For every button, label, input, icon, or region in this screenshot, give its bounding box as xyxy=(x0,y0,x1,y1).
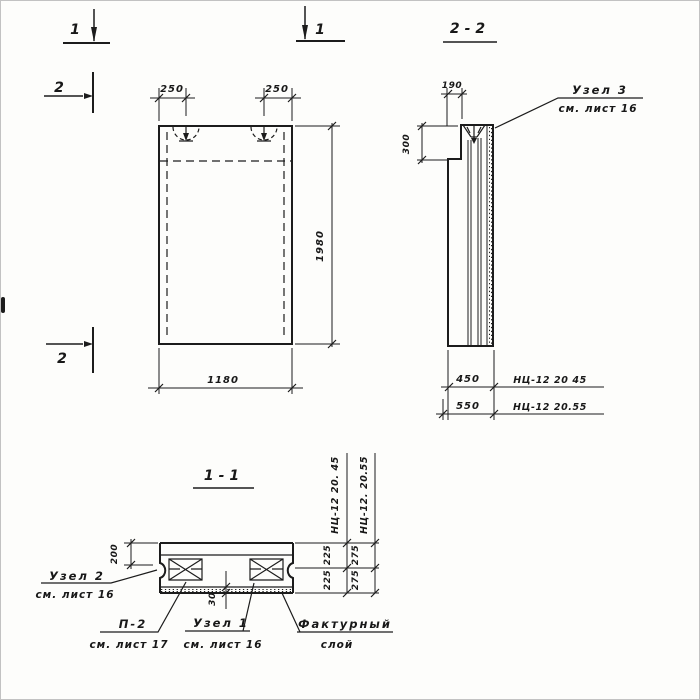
dim-ticks xyxy=(127,539,230,597)
dim-label-190: 190 xyxy=(442,81,463,91)
dim-label-30: 30 xyxy=(208,592,218,606)
dim-label-450: 450 xyxy=(455,374,480,385)
callout-p2-line2: см. лист 17 xyxy=(89,639,168,651)
section-1-1-view: 1-1 200 30 НЦ-12 20. 45 НЦ-12. 20.55 xyxy=(35,453,393,651)
callout-node2-line2: см. лист 16 xyxy=(35,589,114,601)
dim-label-250-right: 250 xyxy=(265,84,289,95)
dim-label-275-bottom: 275 xyxy=(351,570,361,591)
dim-label-1980: 1980 xyxy=(315,230,326,262)
layer-lines xyxy=(468,126,487,345)
cut-marker-1-right: 1 xyxy=(296,6,345,41)
section-1-1-title-label: 1-1 xyxy=(204,468,244,484)
down-arrow-icon xyxy=(471,138,477,144)
facing-layer-texture xyxy=(490,127,492,345)
right-arrow-icon xyxy=(84,341,93,347)
callout-facing-line2: слой xyxy=(321,639,354,651)
section-2-2-dimensions: 190 300 450 550 НЦ-12 20 45 НЦ-12 20.55 xyxy=(402,81,604,420)
callout-node1-line1: Узел 1 xyxy=(193,616,249,630)
lifting-loop-left xyxy=(173,126,199,141)
section-1-1-dimensions-right: НЦ-12 20. 45 НЦ-12. 20.55 225 225 275 27… xyxy=(295,453,379,597)
left-edge-with-notch xyxy=(160,543,165,593)
dim-label-250-left: 250 xyxy=(160,84,184,95)
type-label-55-vertical: НЦ-12. 20.55 xyxy=(359,456,370,534)
dim-label-550: 550 xyxy=(456,401,480,412)
lifting-loop-right xyxy=(251,126,277,141)
right-edge-with-notch xyxy=(288,543,293,593)
callout-node3-line1: Узел 3 xyxy=(572,83,628,97)
right-arrow-icon xyxy=(84,93,93,99)
dim-ticks xyxy=(155,94,336,392)
dim-ticks xyxy=(418,90,498,418)
callout-node2: Узел 2 см. лист 16 xyxy=(35,569,157,601)
callout-p2-line1: П-2 xyxy=(119,617,147,631)
dim-lines-300 xyxy=(417,123,458,163)
section-2-2-title: 2-2 xyxy=(443,21,497,42)
type-label-55: НЦ-12 20.55 xyxy=(513,402,587,413)
section-2-2-view: 2-2 190 300 450 550 НЦ-12 20 45 НЦ-12 20… xyxy=(402,21,643,420)
top-recess xyxy=(463,125,485,140)
scan-artifact xyxy=(1,297,5,313)
callout-facing-line1: Фактурный xyxy=(298,617,392,631)
section-1-1-title: 1-1 xyxy=(193,468,254,488)
callout-node3-line2: см. лист 16 xyxy=(558,103,637,115)
marker-2-bottom-label: 2 xyxy=(57,351,67,367)
dim-label-200: 200 xyxy=(110,544,120,565)
dim-lines-width xyxy=(148,348,303,394)
dim-label-1180: 1180 xyxy=(207,375,239,386)
keyway-icon xyxy=(169,559,202,580)
dim-label-275-top: 275 xyxy=(351,545,361,566)
callout-facing-layer: Фактурный слой xyxy=(282,593,393,651)
keyway-left xyxy=(169,559,202,580)
type-label-45-vertical: НЦ-12 20. 45 xyxy=(330,456,341,534)
keyway-icon xyxy=(250,559,283,580)
callout-node3: Узел 3 см. лист 16 xyxy=(495,83,643,128)
callout-node1-line2: см. лист 16 xyxy=(183,639,262,651)
dim-label-300: 300 xyxy=(402,134,412,155)
drawing-sheet: 1 1 2 2 xyxy=(0,0,700,700)
section-1-1-dimensions-left: 200 30 xyxy=(110,539,230,609)
marker-1-right-label: 1 xyxy=(315,22,325,38)
front-view: 250 250 1980 1180 xyxy=(148,84,340,394)
cut-marker-2-bottom: 2 xyxy=(46,327,93,373)
dim-label-225-bottom: 225 xyxy=(323,570,333,591)
marker-2-top-label: 2 xyxy=(54,80,64,96)
down-arrow-icon xyxy=(302,25,308,40)
callout-node2-line1: Узел 2 xyxy=(49,569,105,583)
type-label-45: НЦ-12 20 45 xyxy=(513,375,587,386)
hidden-edges xyxy=(160,132,291,340)
down-arrow-icon xyxy=(91,27,97,42)
section-2-2-title-label: 2-2 xyxy=(450,21,490,37)
cut-marker-1-left: 1 xyxy=(63,9,110,43)
dim-lines-200 xyxy=(124,539,158,569)
panel-drawing: 1 1 2 2 xyxy=(1,1,700,700)
keyway-right xyxy=(250,559,283,580)
dim-label-225-top: 225 xyxy=(323,545,333,566)
marker-1-left-label: 1 xyxy=(70,22,80,38)
front-dimensions: 250 250 1980 1180 xyxy=(148,84,340,394)
cut-marker-2-top: 2 xyxy=(44,72,93,113)
panel-outline xyxy=(159,126,292,344)
